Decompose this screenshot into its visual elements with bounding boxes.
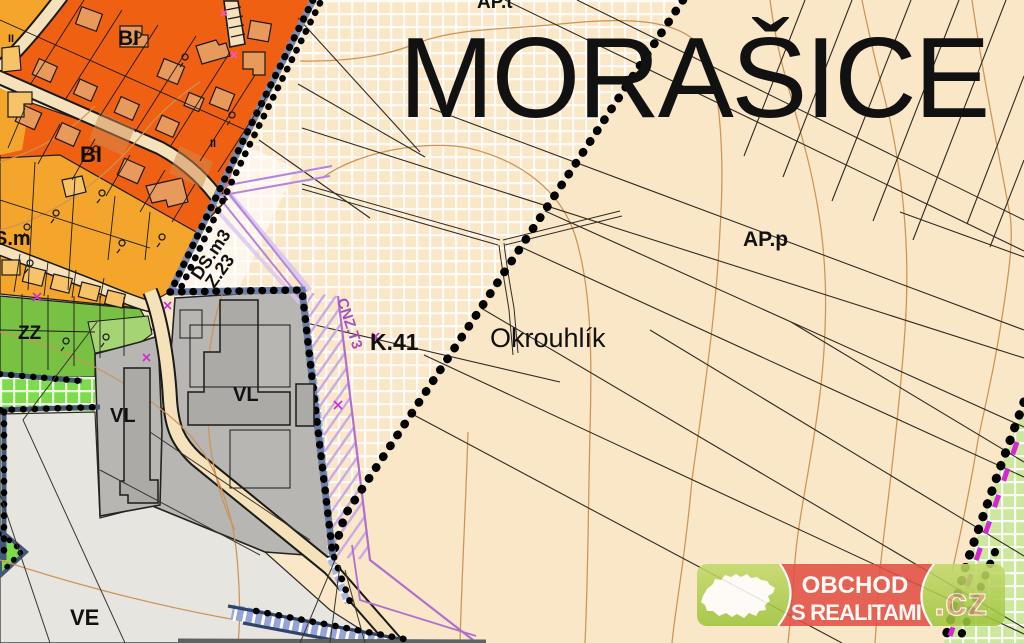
svg-text:.cz: .cz — [934, 580, 987, 624]
svg-text:BI: BI — [80, 142, 102, 167]
svg-text:AP.t: AP.t — [477, 0, 513, 13]
svg-text:BI: BI — [118, 27, 139, 50]
svg-text:AP.p: AP.p — [743, 228, 788, 251]
svg-text:S.m: S.m — [0, 228, 31, 250]
svg-text:K.41: K.41 — [370, 329, 419, 355]
svg-text:VE: VE — [70, 605, 99, 630]
svg-text:ZZ: ZZ — [18, 323, 42, 344]
svg-text:VL: VL — [110, 405, 136, 427]
svg-text:OBCHOD: OBCHOD — [802, 572, 909, 599]
svg-text:MORAŠICE: MORAŠICE — [399, 15, 988, 142]
svg-text:S REALITAMI: S REALITAMI — [791, 600, 921, 625]
svg-text:II: II — [210, 138, 216, 150]
svg-text:II: II — [8, 33, 14, 45]
svg-text:Okrouhlík: Okrouhlík — [490, 323, 606, 353]
svg-text:VL: VL — [233, 384, 259, 406]
